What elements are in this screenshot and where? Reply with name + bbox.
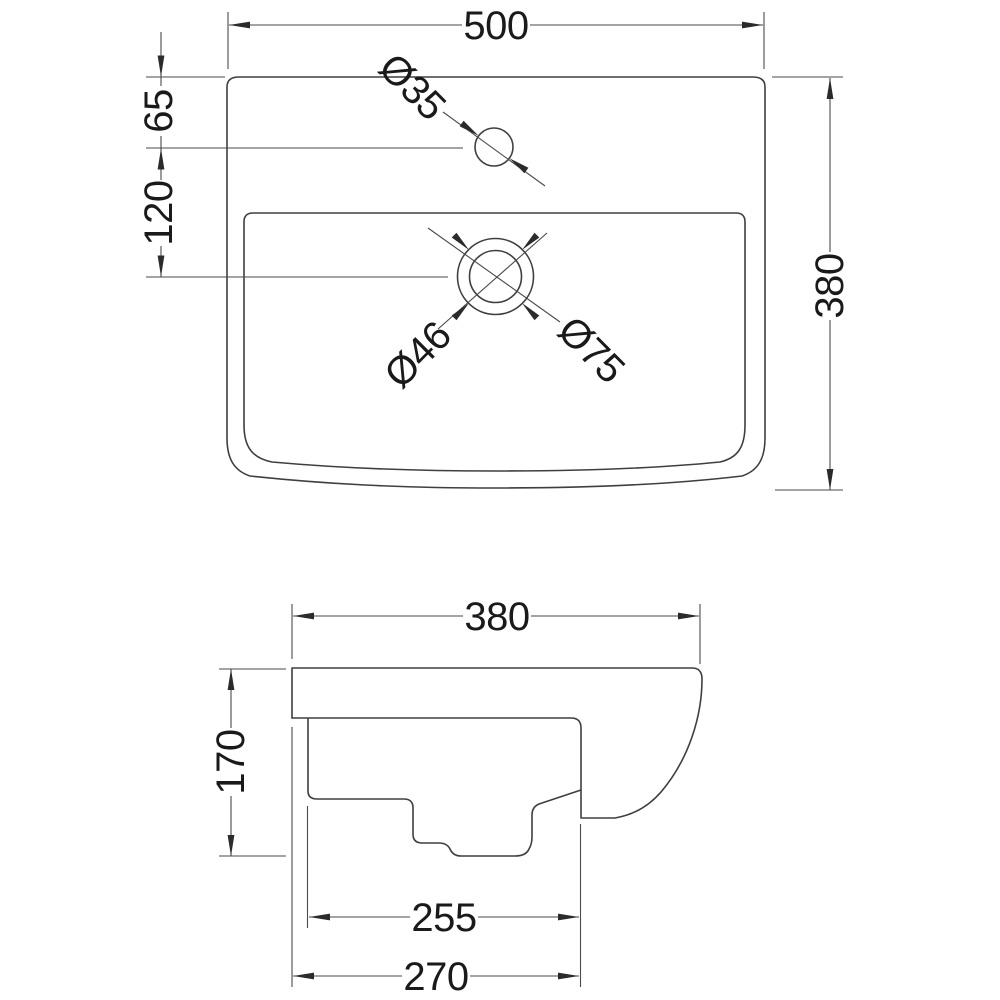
arrow-left-icon (229, 22, 250, 29)
arrow-right-icon (558, 914, 579, 921)
dim-side-height: 170 (209, 669, 286, 856)
dim-side-depth: 380 (292, 595, 700, 664)
arrow-up-icon (158, 149, 165, 170)
dim-label-tap-offset: 65 (137, 89, 181, 133)
tap-hole-circle (475, 128, 513, 166)
basin-profile-outline (292, 668, 702, 818)
arrow-down-icon (228, 835, 235, 856)
dim-label-top-depth: 380 (808, 253, 852, 318)
arrow-right-icon (678, 613, 699, 620)
arrow-diagonal-icon (452, 303, 469, 320)
label-waste-outer-diameter: Ø75 (549, 308, 633, 392)
arrow-diagonal-icon (452, 233, 469, 250)
callout-tap-hole: Ø35 (370, 45, 545, 186)
arrow-left-icon (293, 973, 314, 980)
arrow-diagonal-icon (509, 158, 528, 173)
side-view: 380 170 255 270 (209, 595, 702, 999)
arrow-left-icon (309, 914, 330, 921)
dim-top-depth: 380 (772, 77, 852, 490)
dim-label-side-height: 170 (209, 729, 253, 794)
dim-label-tap-to-waste: 120 (137, 180, 181, 245)
basin-underside-line (292, 718, 581, 818)
arrow-up-icon (827, 78, 834, 99)
dim-top-width: 500 (228, 4, 764, 69)
basin-bowl-rim-outline (244, 213, 745, 471)
arrow-down-icon (158, 256, 165, 277)
top-view: 500 65 120 380 (137, 4, 852, 490)
label-waste-inner-diameter: Ø46 (376, 313, 460, 397)
dim-label-width: 500 (463, 4, 528, 48)
basin-outer-outline (227, 77, 765, 488)
arrow-diagonal-icon (460, 121, 479, 136)
dim-label-overall-depth: 270 (403, 955, 468, 999)
callout-waste-hole: Ø46 Ø75 (376, 228, 633, 397)
arrow-left-icon (293, 613, 314, 620)
dim-label-side-depth: 380 (464, 595, 529, 639)
arrow-down-icon (158, 56, 165, 77)
dim-label-recess-depth: 255 (411, 896, 476, 940)
arrow-down-icon (827, 469, 834, 490)
dim-overall-depth: 270 (292, 727, 579, 999)
arrow-right-icon (742, 22, 763, 29)
drawing-canvas: 500 65 120 380 (0, 0, 1000, 1000)
pedestal-trap-outline (308, 719, 581, 856)
arrow-up-icon (228, 669, 235, 690)
label-tap-hole-diameter: Ø35 (370, 45, 454, 129)
arrow-right-icon (558, 973, 579, 980)
basin-technical-drawing: 500 65 120 380 (0, 0, 1000, 1000)
